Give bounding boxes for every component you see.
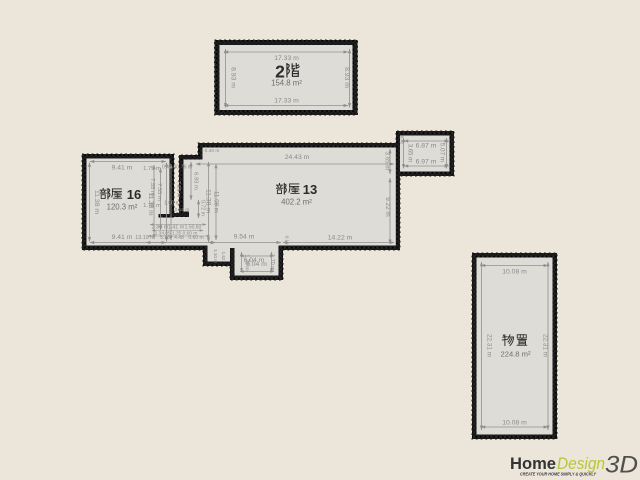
svg-text:1.00 m: 1.00 m [164,201,180,207]
svg-text:14.22 m: 14.22 m [328,235,353,242]
svg-text:0.40 m: 0.40 m [205,148,220,154]
svg-text:9.22 m: 9.22 m [384,197,391,217]
svg-text:1.50,60: 1.50,60 [185,225,202,231]
svg-text:1.70 m: 1.70 m [269,254,275,271]
svg-text:1.62: 1.62 [221,252,226,261]
svg-text:Design: Design [557,455,605,473]
svg-text:0.10: 0.10 [285,236,290,245]
svg-text:9.41 m: 9.41 m [112,234,133,241]
svg-text:CREATE YOUR HOME SIMPLY & QUIC: CREATE YOUR HOME SIMPLY & QUICKLY [520,472,597,477]
svg-text:16: 16 [127,187,141,202]
svg-text:7.55 m: 7.55 m [156,183,162,201]
svg-text:3.65 m: 3.65 m [407,144,413,162]
svg-text:154.8 m²: 154.8 m² [271,79,302,88]
svg-text:11.08 m: 11.08 m [213,191,220,213]
svg-text:8.93 m: 8.93 m [230,67,237,88]
svg-text:10.08 m: 10.08 m [502,269,527,276]
svg-text:10.08 m: 10.08 m [502,420,527,427]
svg-text:9.54 m: 9.54 m [234,234,255,241]
svg-text:8.93 m: 8.93 m [343,67,350,88]
svg-text:3D: 3D [605,452,638,479]
svg-text:22.31 m: 22.31 m [542,334,549,357]
svg-text:11.38 m: 11.38 m [93,190,100,214]
svg-text:Home: Home [510,455,556,473]
svg-text:3.65 m: 3.65 m [384,152,391,171]
svg-text:402.2 m²: 402.2 m² [281,198,312,207]
svg-text:5.07 m: 5.07 m [439,143,446,163]
svg-text:1.10 m: 1.10 m [213,249,218,263]
svg-text:6.93 m: 6.93 m [193,172,199,190]
svg-text:1.70 m: 1.70 m [244,254,250,271]
svg-text:120.3 m²: 120.3 m² [107,202,138,211]
svg-text:24.43 m: 24.43 m [285,154,310,161]
svg-text:22.31 m: 22.31 m [486,334,493,357]
svg-text:2.84 m: 2.84 m [152,225,169,231]
svg-text:0.18 m: 0.18 m [175,207,190,213]
svg-text:1.75 m: 1.75 m [143,166,161,172]
svg-text:224.8 m²: 224.8 m² [501,350,531,359]
svg-text:7.55 m: 7.55 m [149,178,155,196]
svg-text:6.87 m: 6.87 m [416,143,437,150]
svg-text:0.42: 0.42 [400,136,405,145]
svg-text:0.47.40,76 m: 0.47.40,76 m [162,165,192,171]
svg-text:11.38 m: 11.38 m [205,189,212,213]
svg-text:1.75 m: 1.75 m [143,203,161,209]
svg-text:17.33 m: 17.33 m [274,98,299,105]
svg-text:1.41 m: 1.41 m [168,225,185,231]
svg-text:13: 13 [303,182,317,197]
svg-text:6.97 m: 6.97 m [416,159,437,166]
svg-text:9.41 m: 9.41 m [112,165,133,172]
svg-text:7.55 m: 7.55 m [175,181,181,198]
